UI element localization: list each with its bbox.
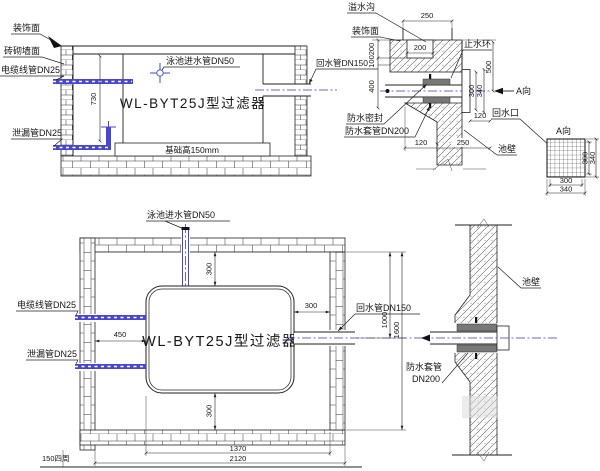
filter-title-section: WL-BYT25J型过滤器 [120,96,266,111]
dim-340-plate: 340 [475,85,484,98]
dim-300-top: 300 [205,263,214,276]
dim-200-notch: 200 [414,43,427,52]
flow-arrow [421,335,430,342]
plan-top-wall [80,238,345,252]
dim-730: 730 [89,93,98,106]
dim-150-margin: 150四周 [42,454,70,463]
dim-100-left: 100 [367,55,376,68]
outlet-grille [547,139,585,177]
label-leak-pipe: 泄漏管DN25 [12,127,62,138]
dim-300-bottom: 300 [205,405,214,418]
pipe-end-dot [386,89,390,93]
dim-120-right: 120 [474,111,487,120]
detail2-sleeve-bottom [457,345,497,352]
label-waterproof-seal: 防水密封 [347,112,383,123]
label-pool-wall-2: 池壁 [522,276,540,287]
label-foundation: 基础高150mm [165,145,219,155]
label-decor-face: 装饰面 [13,22,40,33]
dim-2120: 2120 [230,454,247,463]
label-return-outlet: 回水口 [492,107,519,118]
label-decor-face-detail: 装饰面 [352,25,379,36]
dim-grid-340-side: 340 [588,152,597,165]
watermark-smudge [462,396,498,418]
view-a-arrow-icon [494,88,503,94]
label-pool-inlet: 泳池进水管DN50 [166,55,234,66]
lower-wall-hatched [405,103,462,165]
label-sleeve-line1: 防水套管 [406,361,442,372]
label-brick-wall: 砖砌墙面 [4,45,40,56]
penetration-detail-view: 250 200 200 100 400 500 300 340 120 120 … [344,1,551,171]
right-wall-brick-lower [295,96,307,156]
plan-left-wall [80,238,95,450]
label-pool-wall-detail: 池壁 [498,143,516,154]
sleeve-bottom [423,97,450,103]
right-wall-brick-upper [295,46,307,84]
label-waterproof-sleeve: 防水套管DN200 [345,125,409,136]
dim-1370: 1370 [230,444,247,453]
label-view-a: A向 [516,85,531,96]
cad-drawing: 730 装饰面 砖砌墙面 电缆线管DN25 泄漏管DN25 泳池进水管DN50 … [0,0,600,471]
dim-250-top: 250 [421,11,434,20]
pool-wall-detail-view: 池壁 防水套管 DN200 [406,219,558,461]
label-plan-pool-inlet: 泳池进水管DN50 [147,209,215,220]
label-grid-view-a: A向 [556,125,571,136]
label-cable-conduit: 电缆线管DN25 [1,64,60,75]
label-sleeve-line2: DN200 [412,374,440,384]
dim-250-wall: 250 [457,138,470,147]
filter-title-plan: WL-BYT25J型过滤器 [142,333,298,350]
left-wall-brick [61,46,73,156]
section-view: 730 装饰面 砖砌墙面 电缆线管DN25 泄漏管DN25 泳池进水管DN50 … [0,22,378,176]
label-plan-return-pipe: 回水管DN150 [356,302,411,313]
plan-inlet-pipe [182,224,190,292]
pool-inlet-symbol [150,63,170,83]
detail2-sleeve-top [457,324,497,331]
label-plan-leak-pipe: 泄漏管DN25 [27,348,77,359]
leak-pipe-cross [101,121,116,133]
dim-grid-340-bottom: 340 [560,185,573,194]
plan-view: WL-BYT25J型过滤器 300 450 300 300 1000 1600 … [16,209,420,467]
dim-450: 450 [114,330,127,339]
label-plan-cable-conduit: 电缆线管DN25 [17,299,76,310]
dim-300-right: 300 [305,301,318,310]
drawing-canvas: 730 装饰面 砖砌墙面 电缆线管DN25 泄漏管DN25 泳池进水管DN50 … [0,0,600,471]
label-overflow-gutter: 溢水沟 [348,1,375,12]
floor-brick [61,156,311,176]
grid-detail-view: A向 300 340 300 340 [547,125,599,196]
plan-bottom-wall [80,430,345,445]
dim-400-left: 400 [367,80,376,93]
view-a-marker: A向 [494,85,531,96]
dim-200-left: 200 [367,43,376,56]
dim-1600: 1600 [392,322,401,339]
label-waterstop-ring: 止水环 [464,38,491,49]
dim-120-left: 120 [415,138,428,147]
label-return-pipe: 回水管DN150 [316,58,368,68]
dim-500: 500 [484,61,493,74]
gutter-box [403,28,452,40]
